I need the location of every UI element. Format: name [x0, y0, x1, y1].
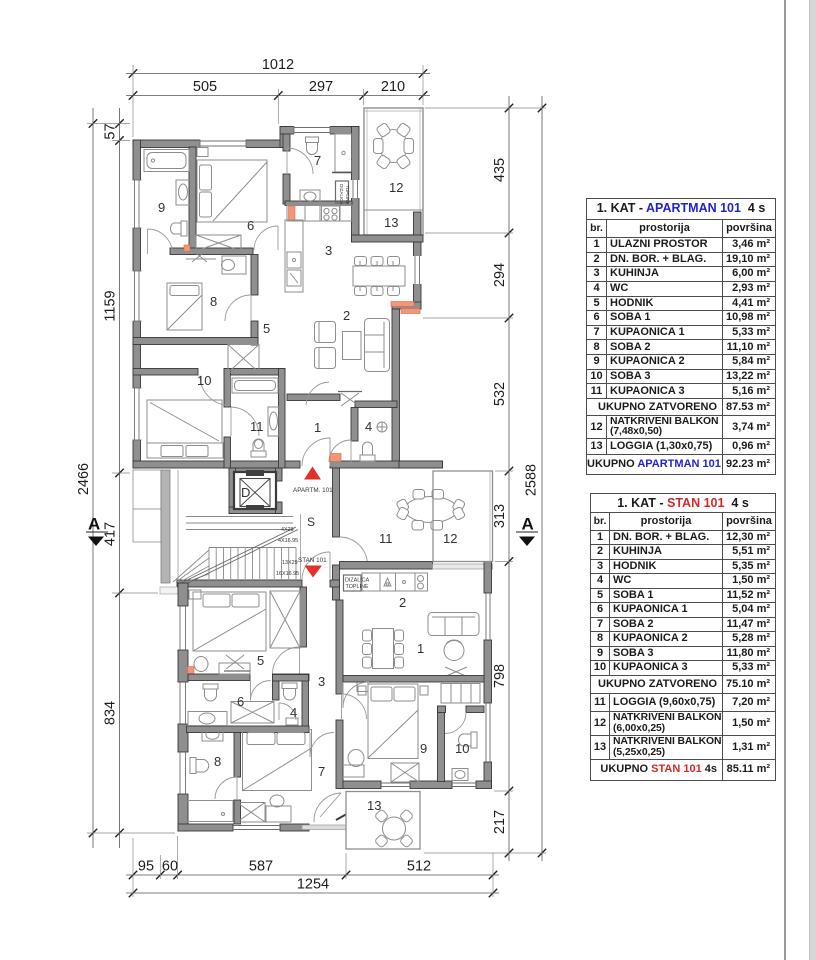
svg-text:512: 512	[407, 859, 431, 875]
svg-text:1: 1	[314, 420, 321, 435]
svg-text:13: 13	[384, 215, 398, 230]
svg-text:7: 7	[314, 153, 321, 168]
svg-text:10: 10	[455, 741, 469, 756]
svg-text:11: 11	[250, 419, 264, 434]
svg-text:12: 12	[389, 180, 403, 195]
svg-text:6: 6	[237, 694, 244, 709]
svg-text:4X29: 4X29	[281, 527, 294, 533]
svg-text:12: 12	[443, 531, 457, 546]
svg-text:STAN 101: STAN 101	[298, 557, 327, 564]
svg-text:16X16.95: 16X16.95	[276, 571, 299, 577]
svg-text:587: 587	[249, 859, 273, 875]
svg-text:505: 505	[193, 79, 217, 95]
svg-text:57: 57	[103, 123, 119, 139]
svg-text:798: 798	[492, 664, 508, 688]
svg-text:5: 5	[257, 653, 264, 668]
svg-text:60: 60	[162, 859, 178, 875]
svg-text:6: 6	[247, 218, 254, 233]
svg-text:1159: 1159	[103, 290, 119, 321]
svg-text:417: 417	[103, 522, 119, 546]
svg-text:8: 8	[210, 294, 217, 309]
svg-text:1012: 1012	[262, 57, 294, 73]
svg-text:297: 297	[309, 79, 333, 95]
svg-text:294: 294	[492, 263, 508, 287]
svg-text:13X29: 13X29	[282, 560, 298, 566]
svg-text:210: 210	[381, 79, 405, 95]
svg-text:532: 532	[492, 382, 508, 406]
svg-text:313: 313	[492, 504, 508, 528]
svg-text:9: 9	[158, 200, 165, 215]
svg-text:S: S	[307, 515, 315, 529]
svg-text:2588: 2588	[524, 464, 540, 496]
svg-text:10: 10	[197, 373, 211, 388]
svg-text:2: 2	[399, 595, 406, 610]
svg-text:4: 4	[365, 419, 372, 434]
svg-text:APARTM. 101: APARTM. 101	[293, 487, 333, 494]
svg-text:217: 217	[492, 810, 508, 834]
svg-text:4: 4	[290, 705, 297, 720]
svg-text:DIZALICA: DIZALICA	[339, 184, 344, 206]
svg-text:DIZALICA: DIZALICA	[345, 578, 370, 584]
svg-text:A: A	[88, 515, 100, 534]
svg-text:5: 5	[263, 321, 270, 336]
svg-text:9: 9	[420, 741, 427, 756]
svg-text:2466: 2466	[76, 463, 92, 495]
svg-text:1: 1	[417, 641, 424, 656]
svg-text:D: D	[241, 485, 250, 500]
svg-text:11: 11	[379, 531, 393, 546]
svg-text:834: 834	[103, 701, 119, 725]
svg-text:3: 3	[318, 674, 325, 689]
svg-text:3: 3	[325, 243, 332, 258]
svg-text:7: 7	[318, 764, 325, 779]
svg-text:4X16.95: 4X16.95	[278, 538, 298, 544]
svg-text:435: 435	[492, 158, 508, 182]
svg-text:2: 2	[343, 308, 350, 323]
svg-text:13: 13	[367, 798, 381, 813]
svg-text:1254: 1254	[297, 877, 329, 893]
svg-text:TOPLINE: TOPLINE	[346, 584, 369, 590]
svg-text:95: 95	[138, 859, 154, 875]
svg-text:A: A	[522, 515, 534, 534]
svg-text:8: 8	[214, 754, 221, 769]
svg-text:TOPLINE: TOPLINE	[345, 185, 350, 205]
